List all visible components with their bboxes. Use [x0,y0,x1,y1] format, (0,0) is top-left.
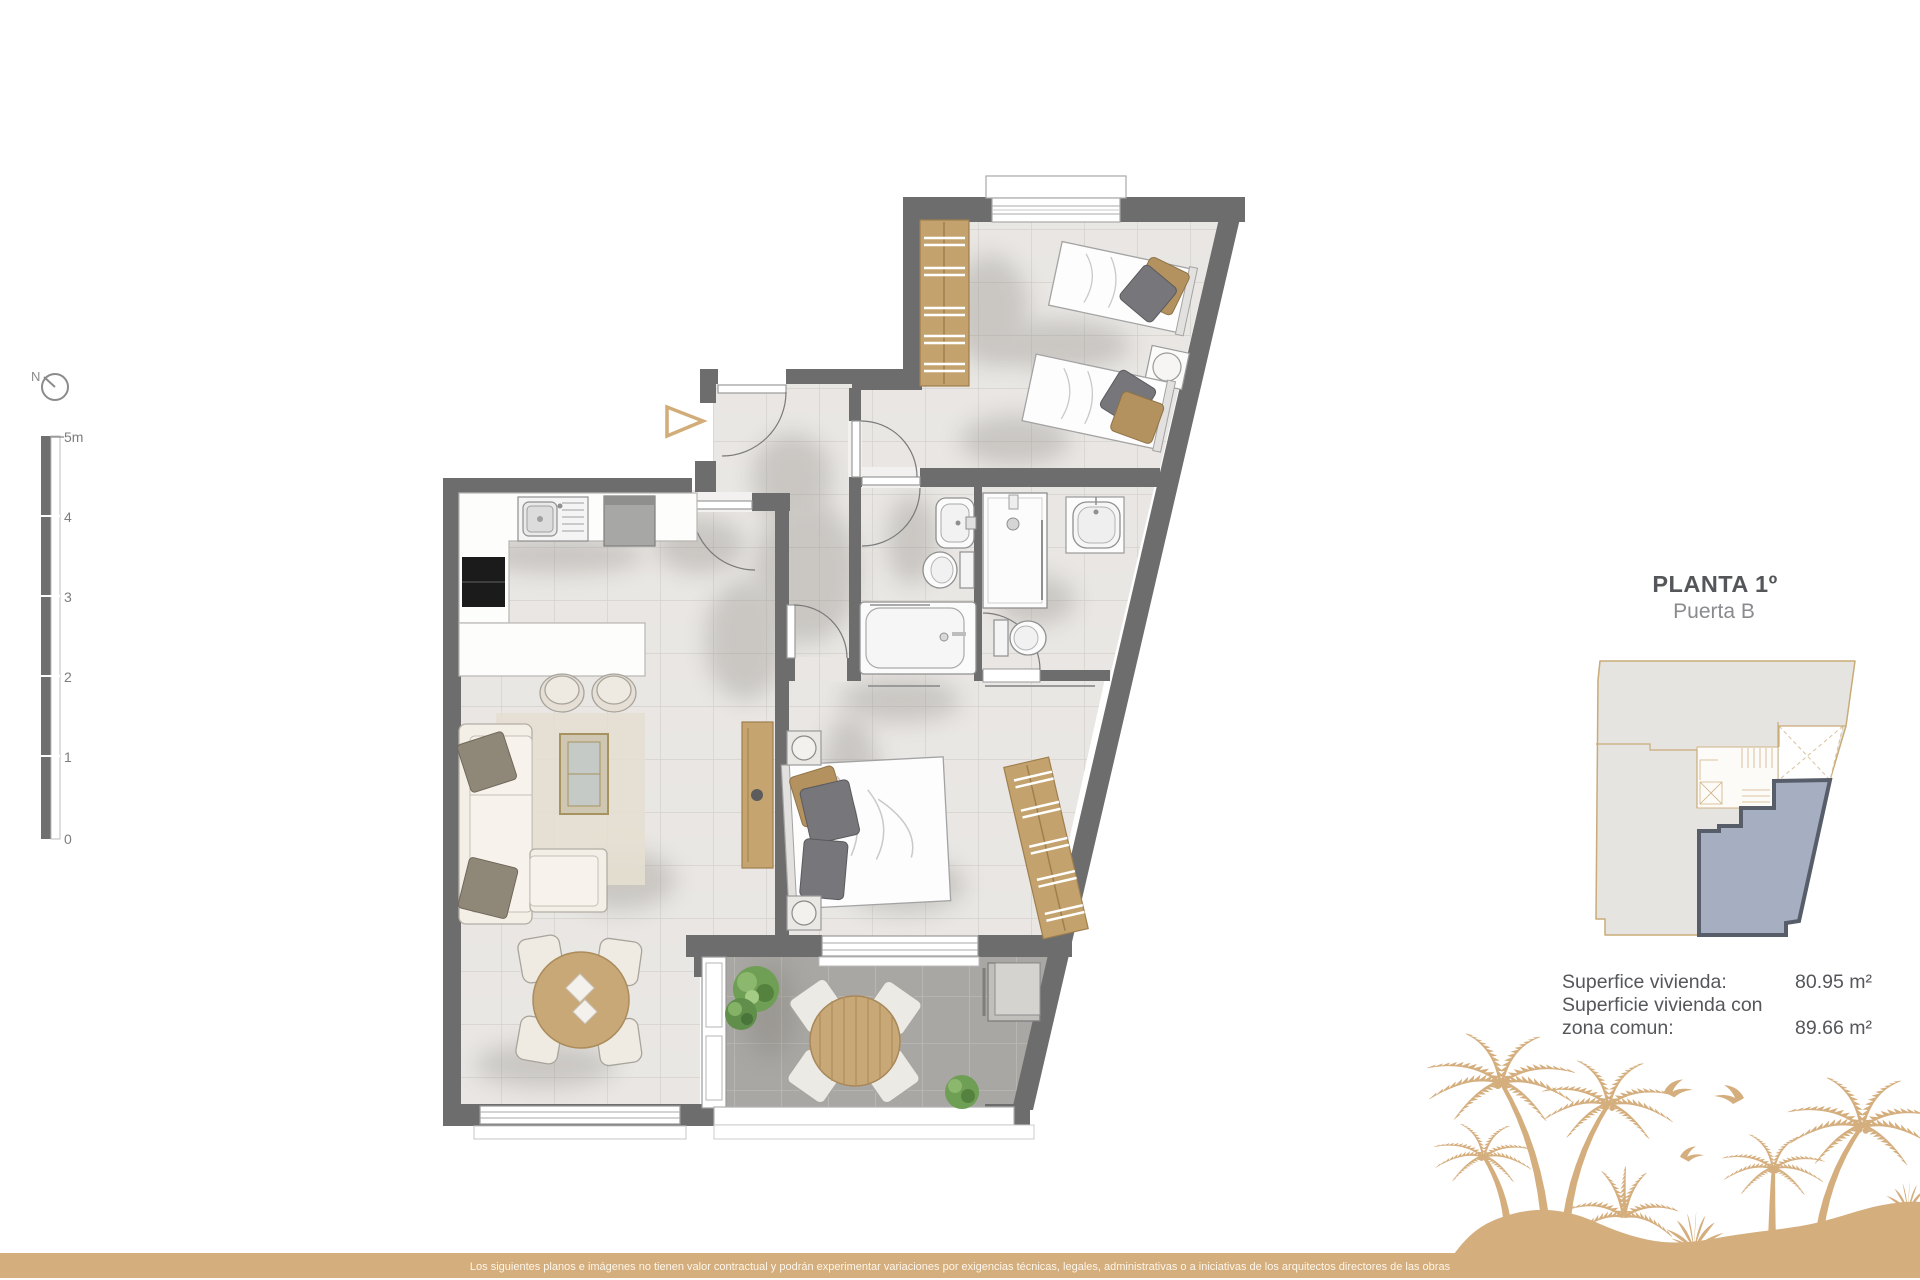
svg-text:2: 2 [64,669,72,685]
svg-text:4: 4 [64,509,72,525]
svg-text:3: 3 [64,589,72,605]
svg-text:1: 1 [64,749,72,765]
svg-text:80.95 m²: 80.95 m² [1795,971,1872,993]
svg-text:89.66 m²: 89.66 m² [1795,1017,1872,1039]
svg-text:Superfice vivienda:: Superfice vivienda: [1562,971,1727,993]
svg-text:0: 0 [64,831,72,847]
svg-text:Superficie vivienda con: Superficie vivienda con [1562,994,1763,1016]
svg-text:N: N [31,369,40,384]
svg-text:zona comun:: zona comun: [1562,1017,1674,1039]
svg-text:PLANTA 1º: PLANTA 1º [1652,571,1777,597]
svg-text:Los siguientes planos e imágen: Los siguientes planos e imágenes no tien… [470,1261,1451,1273]
svg-text:Puerta B: Puerta B [1673,600,1755,623]
svg-text:5m: 5m [64,429,83,445]
